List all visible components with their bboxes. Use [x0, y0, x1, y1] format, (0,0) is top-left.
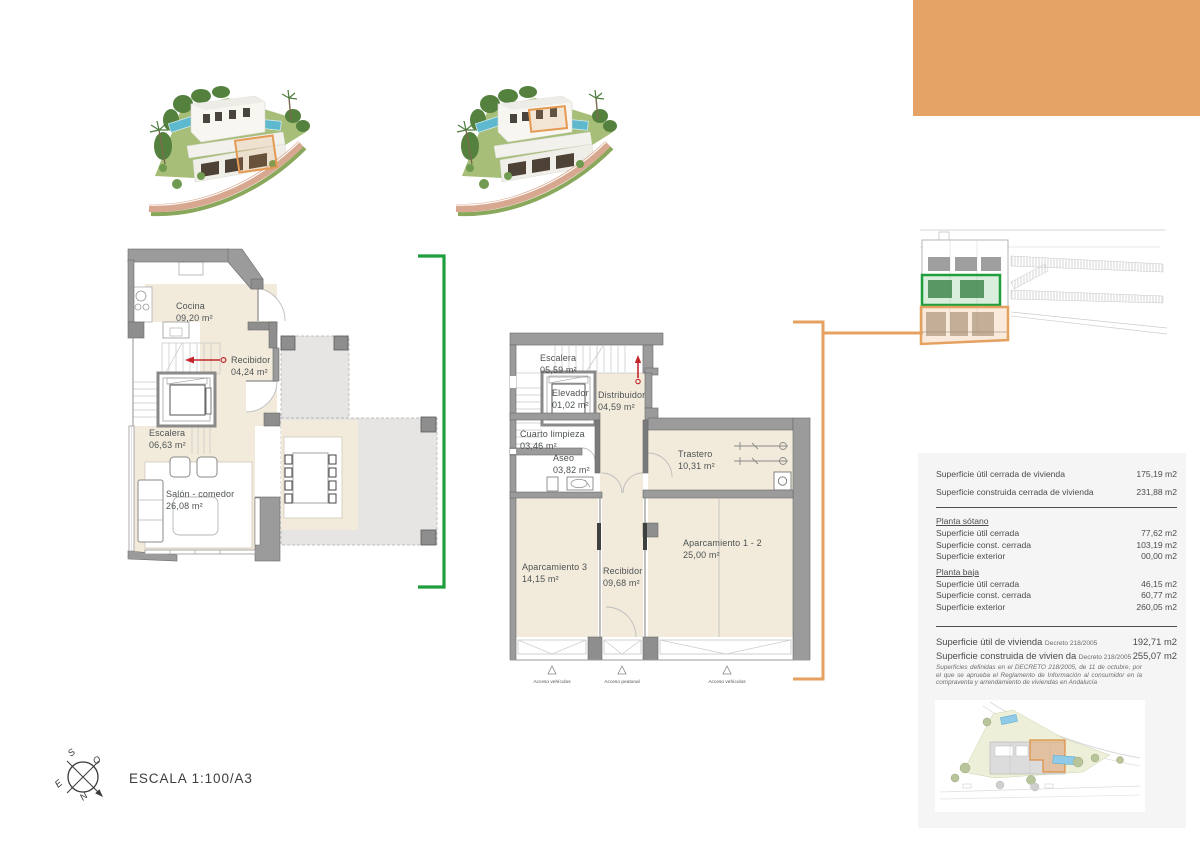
summary-row: Superficie const. cerrada 103,19 m2	[936, 540, 1177, 552]
floor-plan-planta-baja: Cocina 09,20 m² Recibidor 04,24 m² Escal…	[85, 248, 460, 598]
dining-table	[293, 453, 328, 503]
decreto-row: Superficie construida de vivien da Decre…	[936, 650, 1177, 661]
window-wall-bottom	[145, 550, 255, 554]
room-area-aparcamiento3: 14,15 m²	[522, 574, 559, 584]
legal-note: Superficies definidas en el DECRETO 218/…	[936, 664, 1142, 687]
room-area-escalera-s: 05,59 m²	[540, 365, 577, 375]
render-villa-1	[149, 86, 310, 214]
site-cars	[963, 784, 1053, 788]
room-area-escalera: 06,63 m²	[149, 440, 186, 450]
room-label-recibidor-s: Recibidor	[603, 566, 642, 576]
room-label-aparcamiento12: Aparcamiento 1 - 2	[683, 538, 762, 548]
site-plan-card	[935, 700, 1145, 812]
compass: S O E N	[50, 742, 120, 812]
section-title-baja: Planta baja	[936, 566, 1177, 578]
room-label-aparcamiento3: Aparcamiento 3	[522, 562, 587, 572]
room-area-elevador: 01,02 m²	[552, 400, 589, 410]
boiler-box	[774, 472, 791, 490]
room-area-cuarto: 03,46 m²	[520, 441, 557, 451]
summary-label: Superficie útil cerrada	[936, 579, 1019, 591]
villa-renders	[140, 60, 650, 225]
room-area-salon: 26,08 m²	[166, 501, 203, 511]
summary-row: Superficie exterior 00,00 m2	[936, 551, 1177, 563]
elevation-drawing	[915, 226, 1195, 356]
orange-bracket	[790, 315, 925, 685]
site-plan	[935, 700, 1145, 812]
brand-color-block	[913, 0, 1200, 116]
render2-groundfloor-highlight	[529, 106, 567, 132]
summary-value: 77,62 m2	[1141, 528, 1177, 540]
summary-row: Superficie construida cerrada de viviend…	[936, 486, 1177, 498]
room-label-escalera-s: Escalera	[540, 353, 576, 363]
room-area-distribuidor: 04,59 m²	[598, 402, 635, 412]
brochure-page: { "colors": { "accent_orange": "#E5A465"…	[0, 0, 1200, 849]
summary-row: Superficie exterior 260,05 m2	[936, 602, 1177, 614]
summary-label: Superficie útil cerrada de vivienda	[936, 468, 1065, 480]
room-label-recibidor: Recibidor	[231, 355, 270, 365]
room-area-aparcamiento12: 25,00 m²	[683, 550, 720, 560]
room-area-cocina: 09,20 m²	[176, 313, 213, 323]
floor-plan-planta-sotano: Escalera 05,59 m² Elevador 01,02 m² Dist…	[500, 330, 830, 690]
room-area-aseo: 03,82 m²	[553, 465, 590, 475]
summary-value: 103,19 m2	[1136, 540, 1177, 552]
summary-value: 46,15 m2	[1141, 579, 1177, 591]
summary-value: 60,77 m2	[1141, 590, 1177, 602]
summary-value: 175,19 m2	[1136, 468, 1177, 480]
pillar-window-slot	[255, 498, 260, 545]
room-label-elevador: Elevador	[552, 388, 589, 398]
summary-label: Superficie exterior	[936, 551, 1005, 563]
room-area-recibidor-s: 09,68 m²	[603, 578, 640, 588]
decreto-value: 192,71 m2	[1133, 636, 1177, 647]
summary-label: Superficie útil cerrada	[936, 528, 1019, 540]
summary-row: Superficie útil cerrada de vivienda 175,…	[936, 468, 1177, 480]
summary-value: 00,00 m2	[1141, 551, 1177, 563]
summary-row: Superficie útil cerrada 46,15 m2	[936, 579, 1177, 591]
access-label-1: Acceso vehículos	[533, 679, 571, 685]
aseo-fixtures	[547, 477, 593, 491]
elevation-groundfloor-highlight	[922, 275, 1000, 305]
summary-label: Superficie const. cerrada	[936, 590, 1031, 602]
summary-value: 231,88 m2	[1136, 486, 1177, 498]
render1-basement-highlight	[235, 136, 277, 173]
terrace-upper	[281, 336, 349, 418]
access-label-2: Acceso peatonal	[604, 679, 639, 685]
divider	[936, 507, 1177, 508]
room-label-trastero: Trastero	[678, 449, 712, 459]
decreto-label: Superficie útil de vivienda	[936, 636, 1042, 647]
access-label-3: Acceso vehículos	[708, 679, 746, 685]
render-villa-2	[456, 86, 617, 214]
summary-row: Superficie útil cerrada 77,62 m2	[936, 528, 1177, 540]
room-label-distribuidor: Distribuidor	[598, 390, 645, 400]
decreto-row: Superficie útil de vivienda Decreto 218/…	[936, 636, 1177, 647]
summary-row: Superficie const. cerrada 60,77 m2	[936, 590, 1177, 602]
elevator-shaft	[158, 373, 215, 426]
compass-e: E	[53, 777, 65, 790]
section-title-sotano: Planta sótano	[936, 515, 1177, 527]
room-label-salon: Salón - comedor	[166, 489, 234, 499]
elevation-basement-highlight	[921, 307, 1008, 344]
compass-s: S	[66, 746, 78, 759]
summary-label: Superficie construida cerrada de viviend…	[936, 486, 1094, 498]
decreto-suffix: Decreto 218/2005	[1045, 640, 1097, 647]
divider	[936, 626, 1177, 627]
room-area-recibidor: 04,24 m²	[231, 367, 268, 377]
kitchen-appliances	[133, 287, 152, 322]
scale-label: ESCALA 1:100/A3	[129, 771, 253, 786]
decreto-suffix: Decreto 218/2005	[1079, 654, 1131, 661]
room-label-escalera: Escalera	[149, 428, 185, 438]
decreto-value: 255,07 m2	[1133, 650, 1177, 661]
dining-patio	[281, 420, 358, 530]
summary-label: Superficie exterior	[936, 602, 1005, 614]
elevation-ground	[1011, 312, 1167, 334]
kitchen-window-box	[179, 262, 203, 275]
summary-panel: Superficie útil cerrada de vivienda 175,…	[918, 453, 1186, 828]
room-label-aseo: Aseo	[553, 453, 574, 463]
room-area-trastero: 10,31 m²	[678, 461, 715, 471]
elevation-fences	[1011, 256, 1163, 303]
summary-label: Superficie const. cerrada	[936, 540, 1031, 552]
compass-n: N	[78, 790, 90, 803]
access-markers	[548, 666, 731, 674]
decreto-label: Superficie construida de vivien da	[936, 650, 1076, 661]
window-wall-left	[129, 426, 134, 551]
room-label-cuarto: Cuarto limpieza	[520, 429, 585, 439]
kitchen-cabinet	[163, 322, 189, 338]
summary-value: 260,05 m2	[1136, 602, 1177, 614]
room-label-cocina: Cocina	[176, 301, 205, 311]
